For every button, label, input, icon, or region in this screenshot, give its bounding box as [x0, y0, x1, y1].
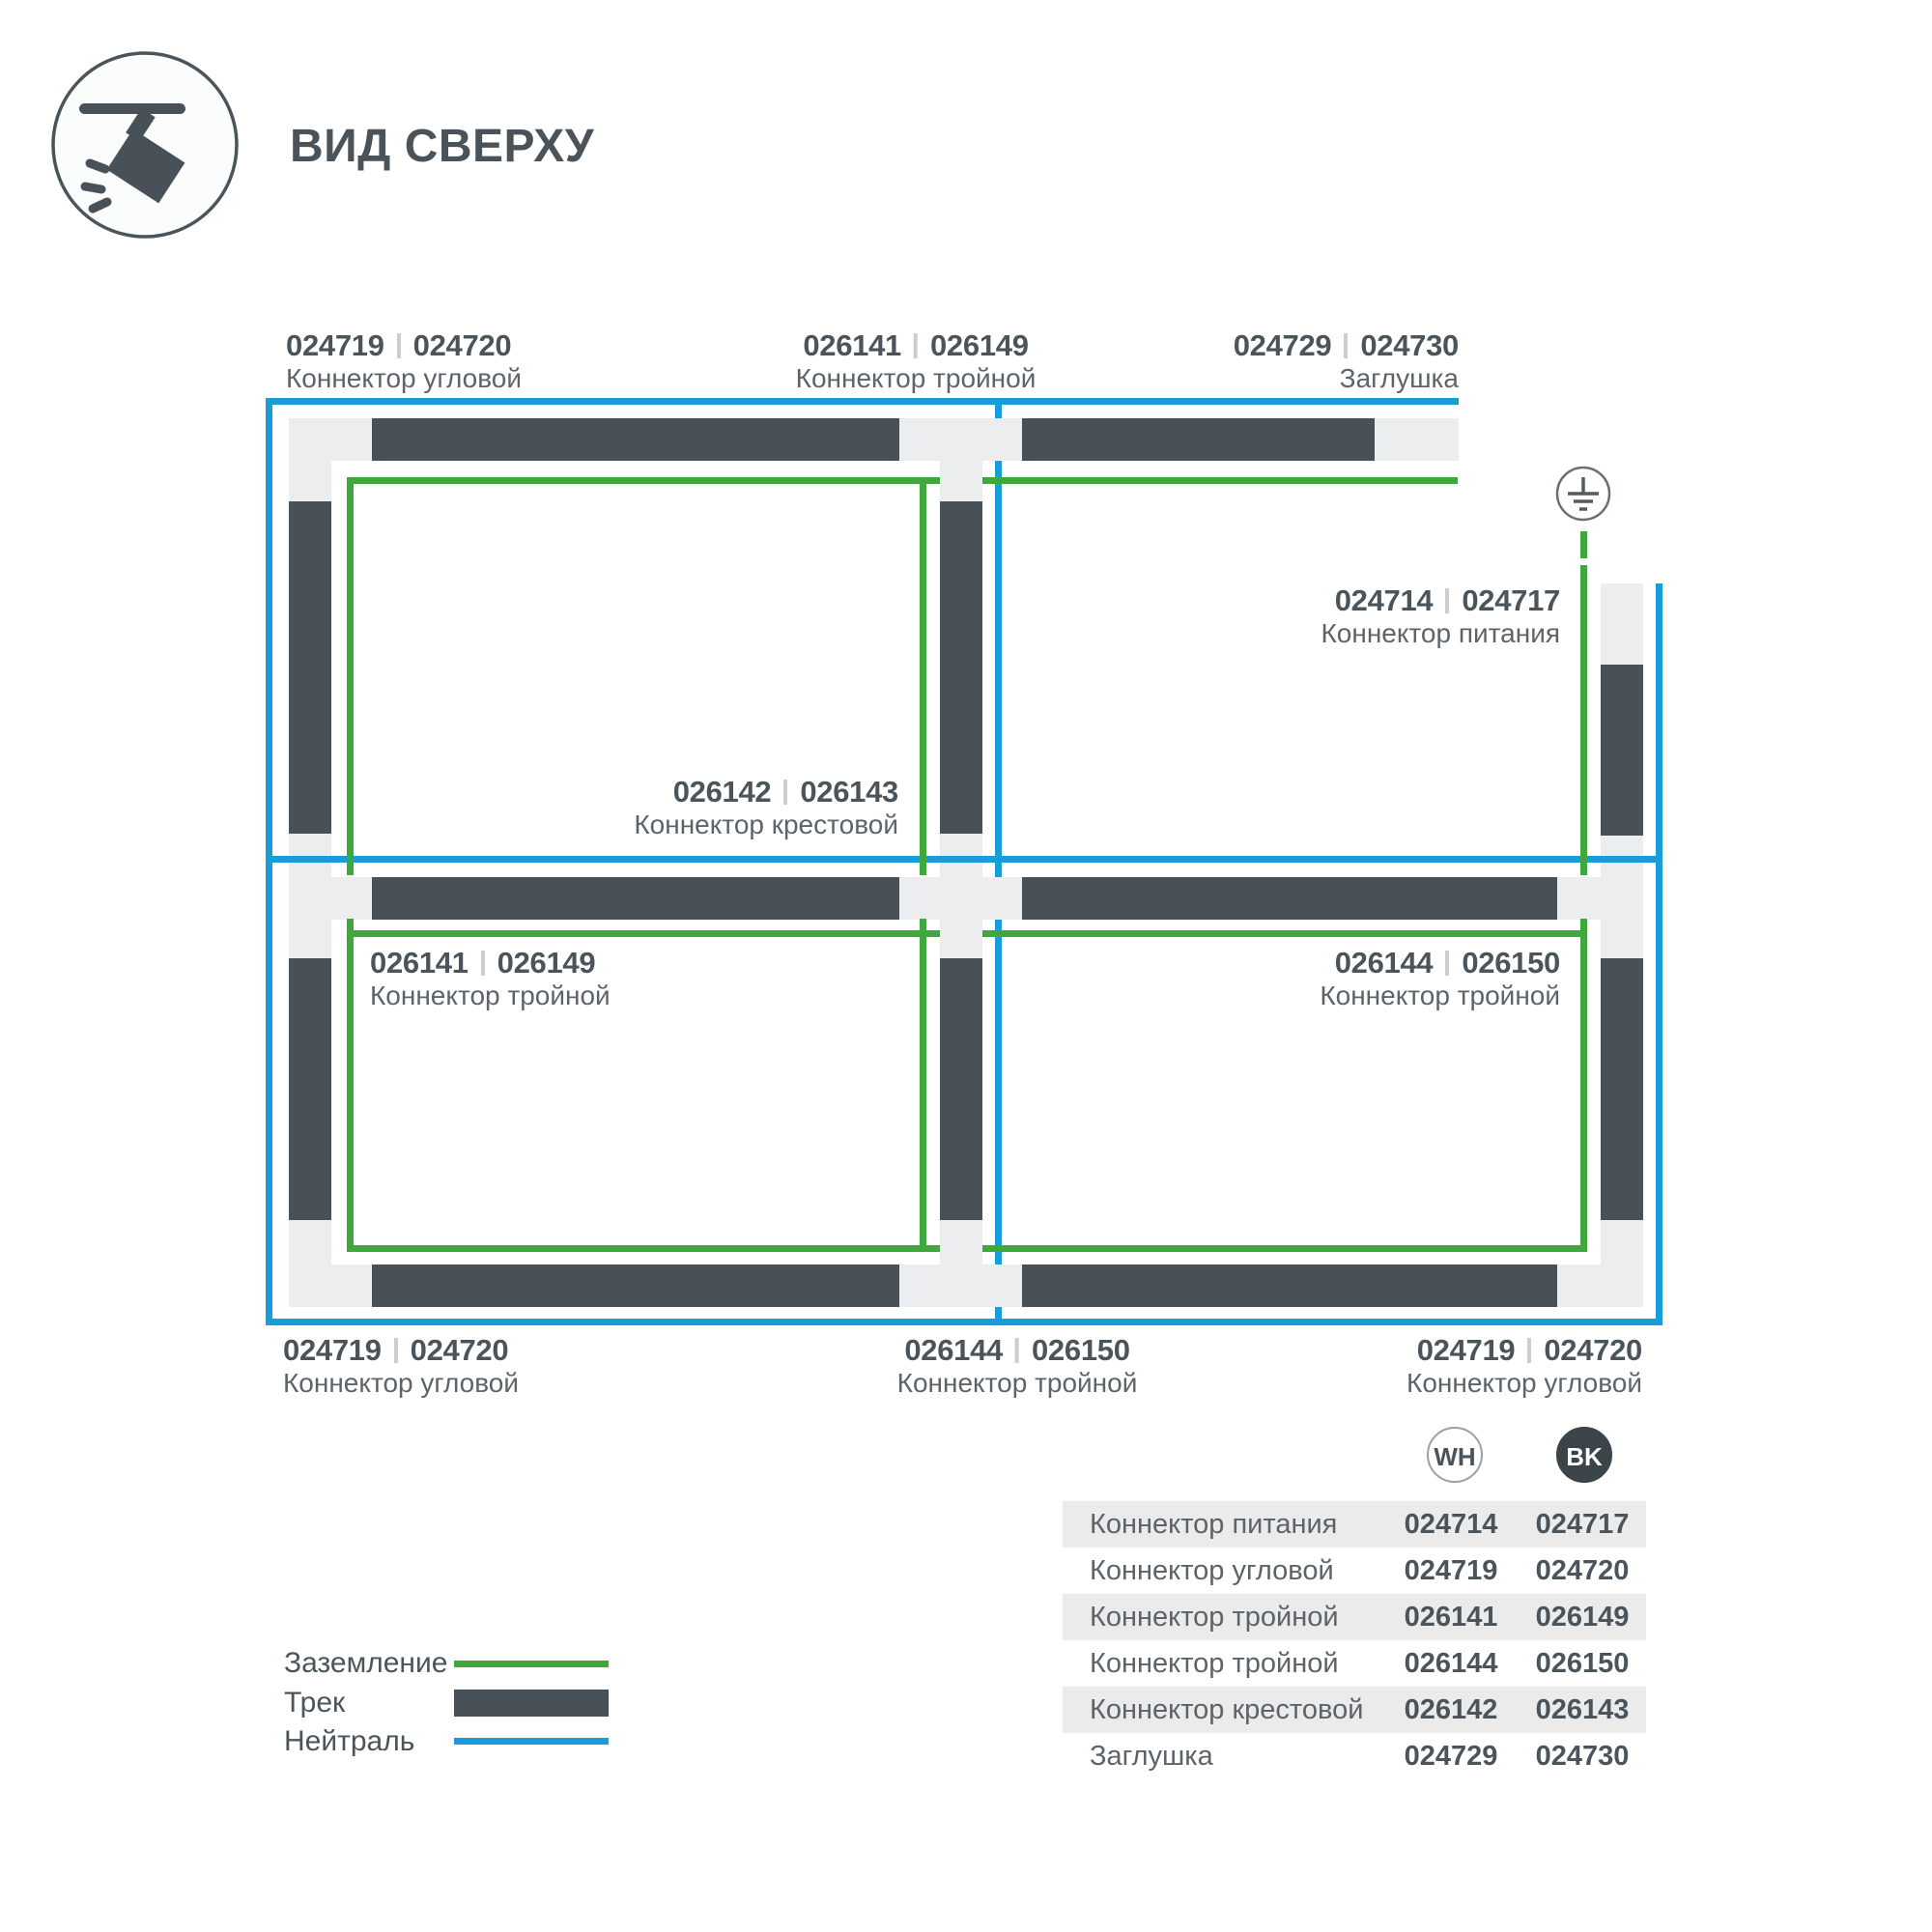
code-separator: [1344, 333, 1348, 358]
neutral-line-right-vertical: [1656, 583, 1662, 1325]
label-corner-connector-top-left: 024719024720 Коннектор угловой: [286, 329, 522, 395]
track-segment: [1022, 1264, 1557, 1307]
ground-line: [920, 919, 926, 1252]
color-badge-black: BK: [1556, 1427, 1612, 1483]
code-separator: [481, 951, 485, 976]
neutral-line-bottom: [269, 1319, 1662, 1325]
ground-line: [920, 477, 926, 875]
code-separator: [1015, 1338, 1019, 1363]
label-corner-connector-bottom-left: 024719024720 Коннектор угловой: [283, 1334, 519, 1400]
track-segment: [372, 1264, 899, 1307]
track-segment: [289, 958, 331, 1220]
neutral-line-top: [269, 398, 1459, 405]
top-view-diagram-page: ВИД СВЕРХУ: [0, 0, 1932, 1932]
ground-line: [982, 930, 1587, 937]
part-name: Заглушка: [1234, 362, 1459, 395]
track-segment: [1601, 958, 1643, 1220]
track-segment: [1022, 418, 1375, 461]
ground-line: [347, 1245, 940, 1252]
label-corner-connector-bottom-right: 024719024720 Коннектор угловой: [1406, 1334, 1642, 1400]
label-triple-connector-top: 026141026149 Коннектор тройной: [796, 329, 1037, 395]
table-row: Коннектор тройной 026141 026149: [1063, 1594, 1646, 1640]
part-name: Коннектор тройной: [897, 1367, 1138, 1400]
track-segment: [372, 418, 899, 461]
label-triple-connector-bottom: 026144026150 Коннектор тройной: [897, 1334, 1138, 1400]
part-codes: 026142026143: [634, 776, 898, 809]
part-codes: 026144026150: [897, 1334, 1138, 1367]
code-separator: [1527, 1338, 1531, 1363]
part-name: Коннектор угловой: [1406, 1367, 1642, 1400]
neutral-line-middle: [269, 856, 1662, 863]
ground-feed-line: [1580, 581, 1587, 875]
part-name: Коннектор крестовой: [634, 809, 898, 841]
legend-ground-label: Заземление: [284, 1644, 447, 1683]
part-name: Коннектор угловой: [283, 1367, 519, 1400]
color-badge-white: WH: [1427, 1427, 1483, 1483]
part-codes: 024719024720: [283, 1334, 519, 1367]
label-triple-connector-mid-right: 026144026150 Коннектор тройной: [1320, 947, 1560, 1012]
label-cross-connector: 026142026143 Коннектор крестовой: [634, 776, 898, 841]
table-row: Коннектор крестовой 026142 026143: [1063, 1687, 1646, 1733]
track-segment: [1022, 877, 1557, 920]
legend-track-swatch: [454, 1690, 609, 1717]
part-codes: 024719024720: [1406, 1334, 1642, 1367]
ground-line: [347, 477, 354, 875]
ground-feed-dash: [1580, 531, 1587, 558]
code-separator: [1445, 588, 1449, 613]
table-row: Заглушка 024729 024730: [1063, 1733, 1646, 1779]
part-name: Коннектор тройной: [1320, 980, 1560, 1012]
ground-line: [982, 1245, 1587, 1252]
table-row: Коннектор питания 024714 024717: [1063, 1501, 1646, 1548]
ground-line: [347, 919, 354, 1252]
part-codes: 024714024717: [1321, 584, 1560, 617]
track-segment: [372, 877, 899, 920]
part-name: Коннектор тройной: [370, 980, 611, 1012]
legend-ground-swatch: [454, 1661, 609, 1667]
part-codes: 024719024720: [286, 329, 522, 362]
legend-track-label: Трек: [284, 1684, 345, 1722]
part-codes: 026141026149: [796, 329, 1037, 362]
ground-line: [347, 930, 940, 937]
ground-line: [982, 477, 1458, 484]
label-power-connector: 024714024717 Коннектор питания: [1321, 584, 1560, 650]
part-codes: 024729024730: [1234, 329, 1459, 362]
legend-neutral-swatch: [454, 1738, 609, 1745]
part-name: Коннектор питания: [1321, 617, 1560, 650]
part-codes: 026144026150: [1320, 947, 1560, 980]
code-separator: [394, 1338, 398, 1363]
part-name: Коннектор угловой: [286, 362, 522, 395]
code-separator: [397, 333, 401, 358]
track-segment: [940, 501, 982, 834]
table-row: Коннектор тройной 026144 026150: [1063, 1640, 1646, 1687]
parts-table: Коннектор питания 024714 024717 Коннекто…: [1063, 1501, 1646, 1779]
label-end-cap: 024729024730 Заглушка: [1234, 329, 1459, 395]
part-codes: 026141026149: [370, 947, 611, 980]
code-separator: [914, 333, 918, 358]
part-name: Коннектор тройной: [796, 362, 1037, 395]
track-spotlight-icon: [48, 48, 241, 241]
ground-feed-dash: [1580, 565, 1587, 581]
neutral-line-left-vertical: [266, 398, 272, 1325]
code-separator: [1445, 951, 1449, 976]
track-segment: [1601, 665, 1643, 836]
track-segment: [289, 501, 331, 834]
track-segment: [940, 958, 982, 1220]
ground-line: [347, 477, 940, 484]
page-title: ВИД СВЕРХУ: [290, 120, 594, 173]
code-separator: [783, 780, 787, 805]
table-row: Коннектор угловой 024719 024720: [1063, 1548, 1646, 1594]
earth-ground-icon: [1554, 465, 1612, 523]
legend-neutral-label: Нейтраль: [284, 1722, 414, 1761]
ground-line: [1580, 919, 1587, 1252]
label-triple-connector-mid-left: 026141026149 Коннектор тройной: [370, 947, 611, 1012]
